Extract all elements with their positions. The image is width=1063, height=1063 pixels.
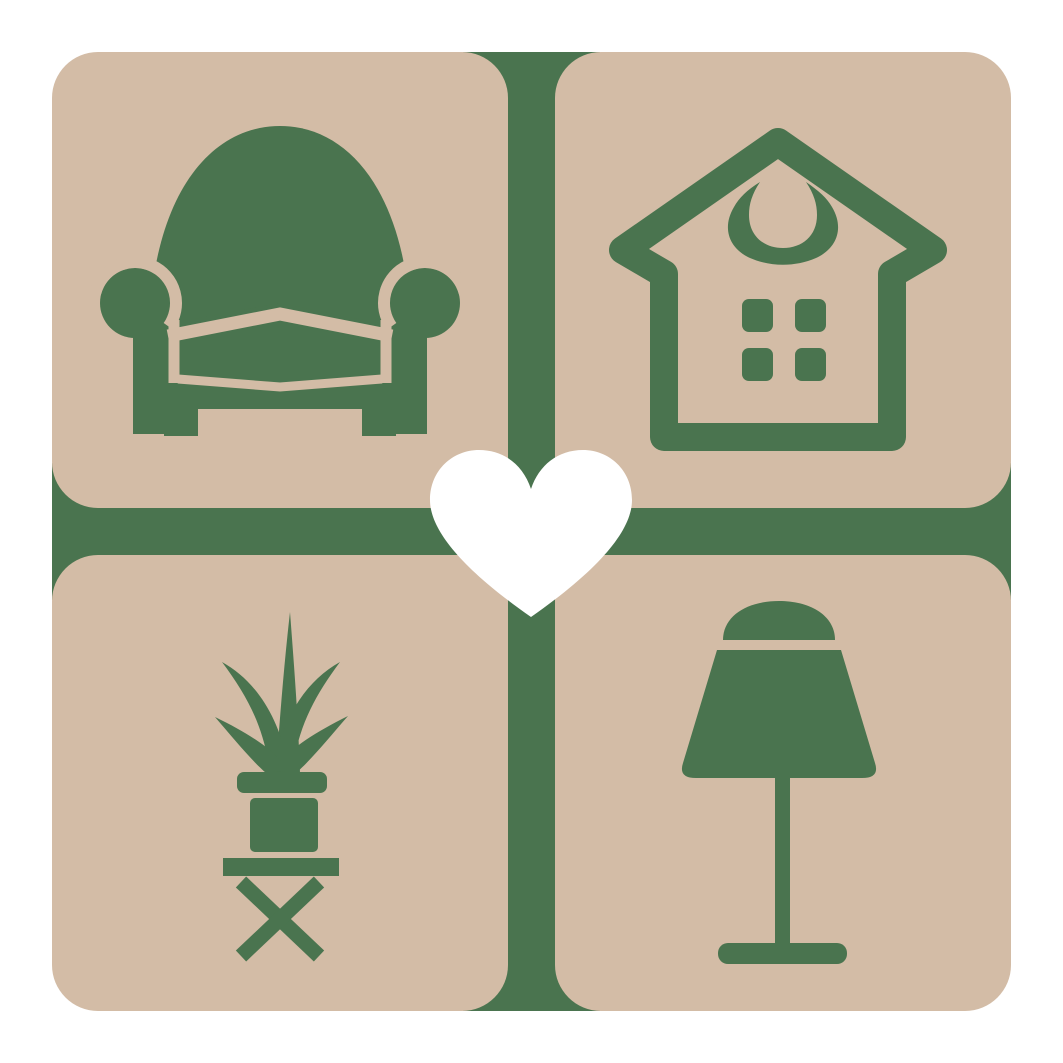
potted-plant-icon — [52, 555, 508, 1011]
table-lamp-icon — [555, 555, 1011, 1011]
house-icon — [555, 52, 1011, 508]
tile-house — [555, 52, 1011, 508]
armchair-icon — [52, 52, 508, 508]
tile-armchair — [52, 52, 508, 508]
tile-lamp — [555, 555, 1011, 1011]
house-ornament-crescent — [728, 182, 838, 265]
heart-icon — [424, 444, 638, 622]
tile-plant — [52, 555, 508, 1011]
logo-canvas — [0, 0, 1063, 1063]
